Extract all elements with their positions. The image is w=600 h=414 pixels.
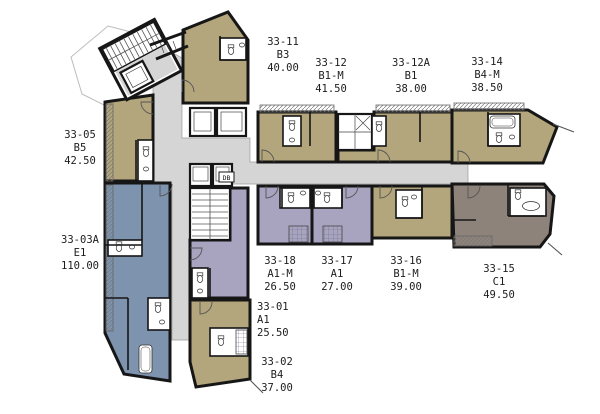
balcony-hatch xyxy=(260,105,334,112)
sink-icon xyxy=(159,320,164,324)
db-panel: DB xyxy=(219,172,234,182)
balcony-hatch xyxy=(106,185,113,331)
toilet-icon xyxy=(155,303,161,313)
unit-label-33-12A: 33-12A B1 38.00 xyxy=(392,57,430,96)
sink-icon xyxy=(300,191,305,195)
sink-icon xyxy=(411,195,416,199)
sink-icon xyxy=(197,289,202,293)
bathtub-icon xyxy=(523,202,540,211)
toilet-icon xyxy=(197,273,203,283)
sink-icon xyxy=(509,135,514,139)
unit-33-03A-shape[interactable] xyxy=(105,183,170,381)
shower xyxy=(323,226,342,242)
stairwell xyxy=(190,188,230,240)
bathroom xyxy=(108,240,142,256)
toilet-icon xyxy=(402,197,408,207)
toilet-icon xyxy=(289,121,295,131)
toilet-icon xyxy=(515,190,521,200)
shower xyxy=(236,330,247,354)
unit-label-33-02: 33-02 B4 37.00 xyxy=(261,356,293,395)
toilet-icon xyxy=(116,242,122,252)
bathroom xyxy=(396,190,422,218)
bathroom xyxy=(280,188,310,208)
unit-label-33-12: 33-12 B1-M 41.50 xyxy=(315,57,347,96)
service-shaft xyxy=(338,114,372,150)
sink-icon xyxy=(143,167,148,171)
floor-plan-canvas: DB 33-05 B5 42.50 33-0 xyxy=(0,0,600,414)
unit-label-33-16: 33-16 B1-M 39.00 xyxy=(390,255,422,294)
sink-icon xyxy=(239,43,244,47)
toilet-icon xyxy=(324,193,330,203)
unit-label-33-17: 33-17 A1 27.00 xyxy=(321,255,353,294)
toilet-icon xyxy=(228,45,234,55)
bathroom xyxy=(138,140,153,181)
balcony-hatch xyxy=(454,103,524,110)
bathtub-icon xyxy=(490,116,515,128)
unit-label-33-18: 33-18 A1-M 26.50 xyxy=(264,255,296,294)
balcony-hatch xyxy=(106,104,113,181)
unit-label-33-11: 33-11 B3 40.00 xyxy=(267,36,299,75)
svg-text:DB: DB xyxy=(223,174,231,182)
bathtub-icon xyxy=(139,345,152,373)
unit-label-33-01: 33-01 A1 25.50 xyxy=(257,301,289,340)
unit-label-33-03A: 33-03A E1 110.00 xyxy=(61,234,99,273)
toilet-icon xyxy=(288,193,294,203)
unit-label-33-14: 33-14 B4-M 38.50 xyxy=(471,56,503,95)
balcony-hatch xyxy=(454,236,492,246)
sink-icon xyxy=(289,138,294,142)
toilet-icon xyxy=(143,147,149,157)
toilet-icon xyxy=(218,336,224,346)
balcony-hatch xyxy=(376,105,450,112)
sink-icon xyxy=(315,191,320,195)
unit-label-33-15: 33-15 C1 49.50 xyxy=(483,263,515,302)
toilet-icon xyxy=(496,133,502,143)
floor-plan-drawing: DB xyxy=(0,0,600,414)
unit-label-33-05: 33-05 B5 42.50 xyxy=(64,129,96,168)
shower xyxy=(289,226,308,242)
toilet-icon xyxy=(376,122,382,132)
